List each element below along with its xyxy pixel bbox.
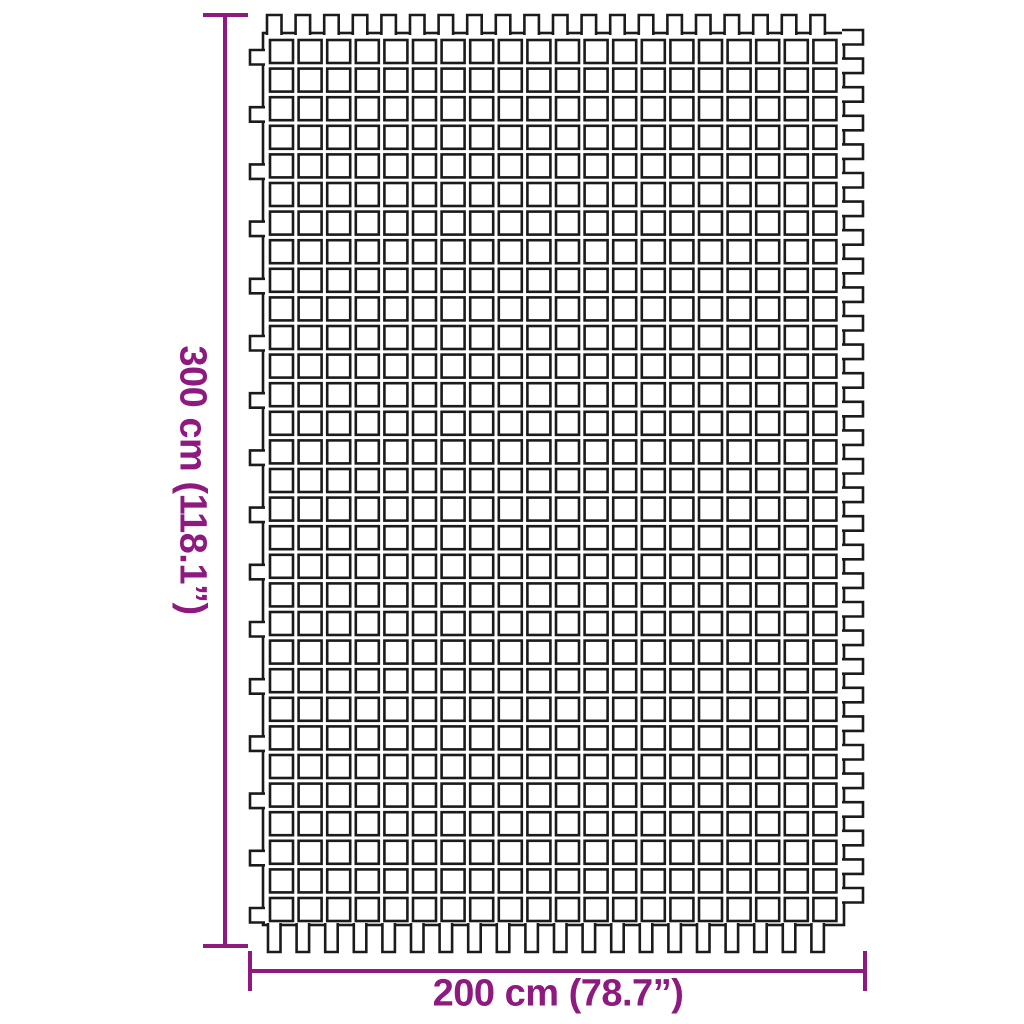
vertical-dimension-cap-bottom bbox=[203, 944, 248, 948]
mesh-mat-graphic bbox=[0, 0, 1024, 1024]
width-dimension-label: 200 cm (78.7”) bbox=[433, 973, 684, 1016]
product-dimension-diagram: 300 cm (118.1”) 200 cm (78.7”) bbox=[0, 0, 1024, 1024]
height-dimension-label: 300 cm (118.1”) bbox=[171, 345, 214, 614]
vertical-dimension-line bbox=[223, 15, 227, 946]
horizontal-dimension-cap-left bbox=[248, 951, 252, 991]
horizontal-dimension-cap-right bbox=[863, 951, 867, 991]
vertical-dimension-cap-top bbox=[203, 13, 248, 17]
